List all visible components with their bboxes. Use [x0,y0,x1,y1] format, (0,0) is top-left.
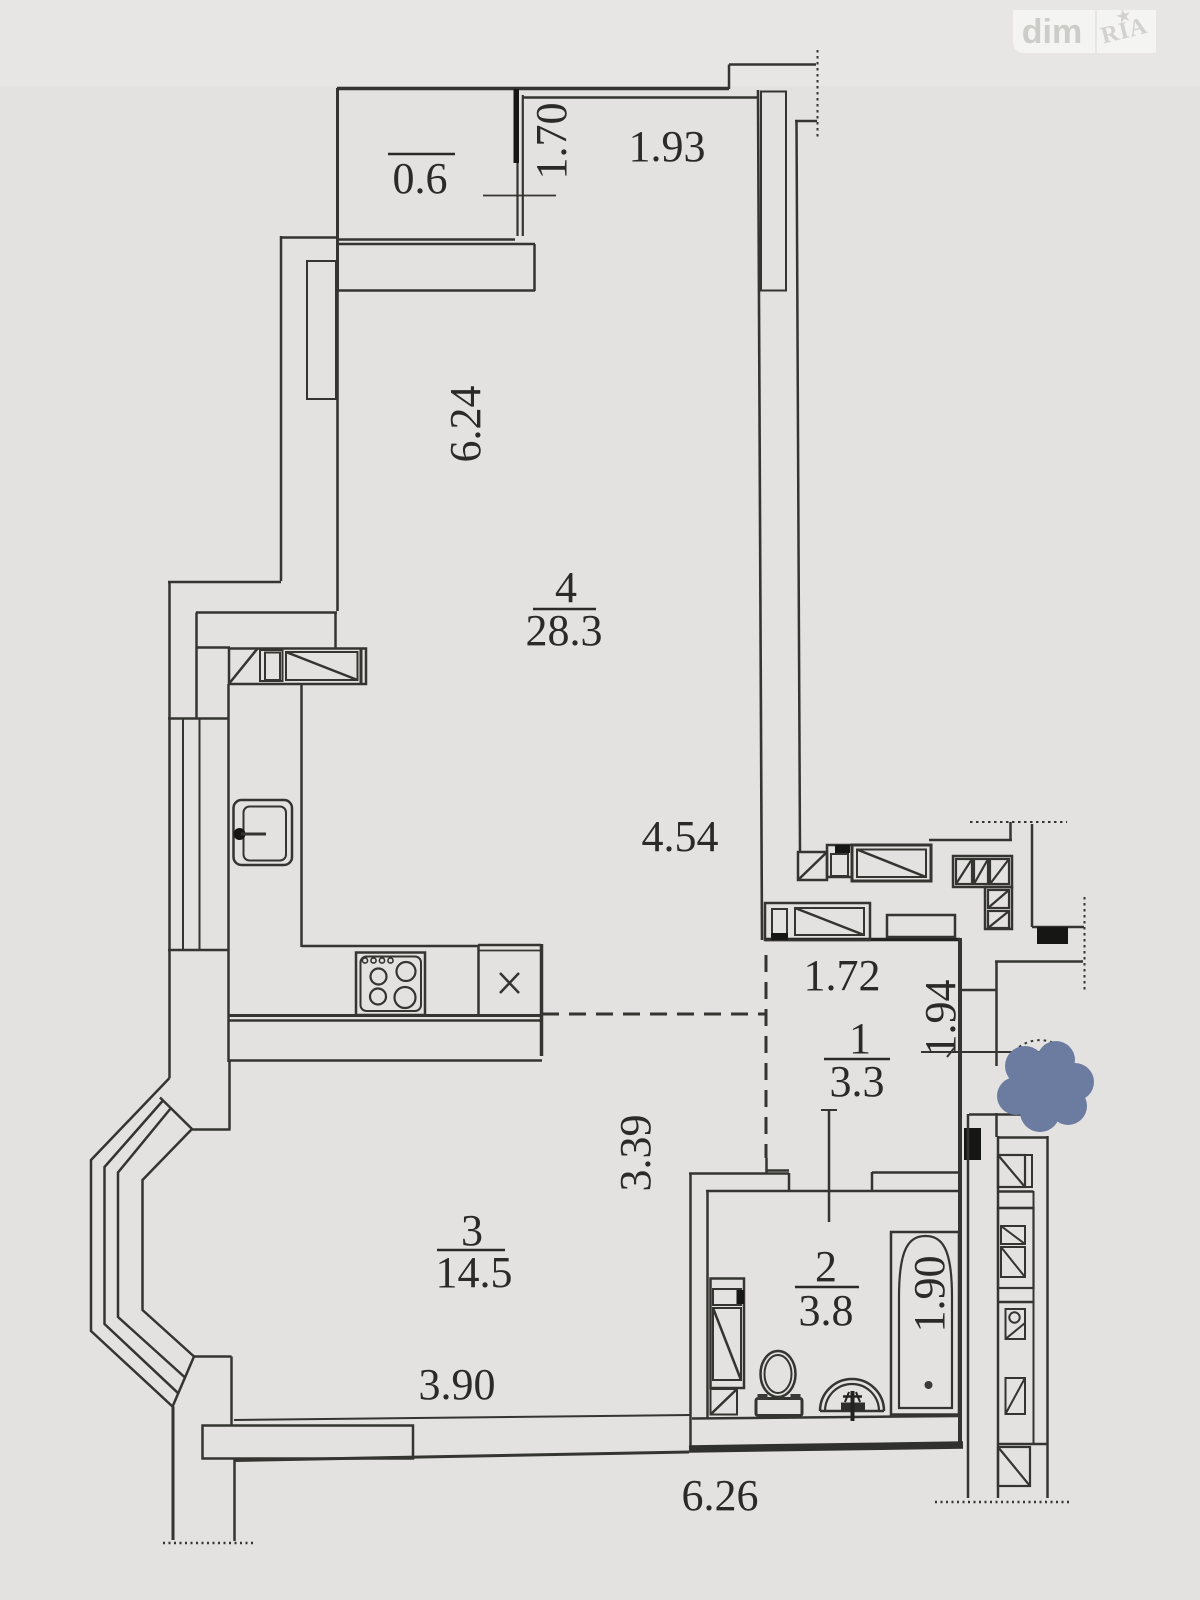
svg-text:4: 4 [555,563,577,612]
svg-text:3.39: 3.39 [611,1115,660,1192]
svg-text:1.94: 1.94 [916,980,965,1057]
svg-text:dim: dim [1022,13,1082,51]
svg-text:28.3: 28.3 [526,606,603,655]
svg-text:3.8: 3.8 [799,1286,854,1335]
svg-text:0.6: 0.6 [393,154,448,203]
svg-text:6.26: 6.26 [682,1471,759,1520]
svg-text:1.90: 1.90 [905,1256,954,1333]
svg-text:1.70: 1.70 [527,103,576,180]
svg-text:2: 2 [815,1242,837,1291]
svg-text:1.72: 1.72 [804,951,881,1000]
svg-text:1.93: 1.93 [629,122,706,171]
svg-text:6.24: 6.24 [441,386,490,463]
svg-text:3.3: 3.3 [830,1057,885,1106]
svg-text:3.90: 3.90 [419,1360,496,1409]
svg-text:4.54: 4.54 [642,812,719,861]
svg-text:1: 1 [849,1014,871,1063]
svg-text:14.5: 14.5 [436,1248,513,1297]
